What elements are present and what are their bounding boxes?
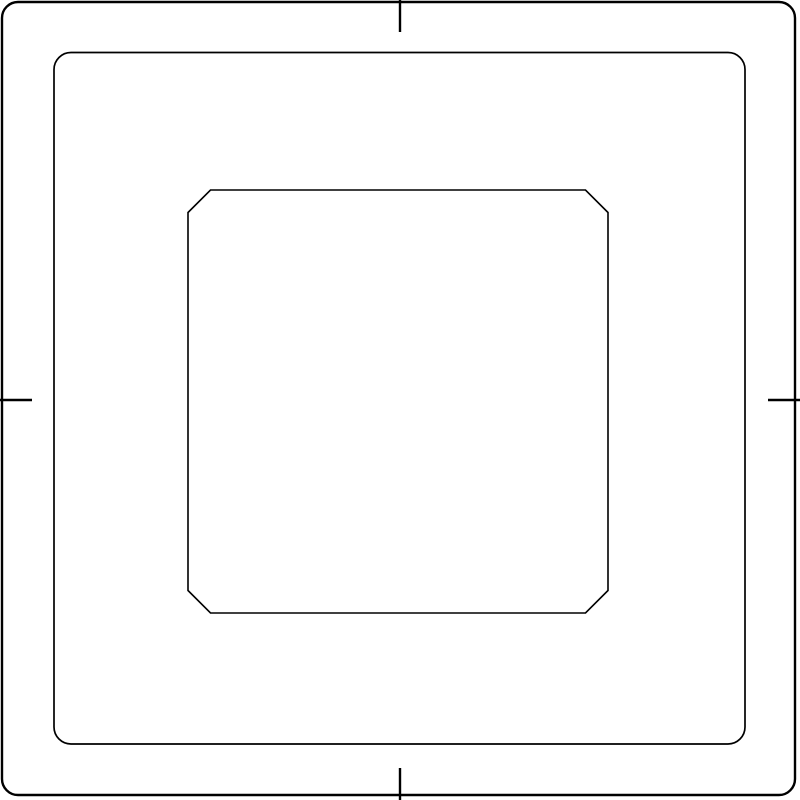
outer-frame-outline: [2, 2, 795, 795]
inner-window-outline: [188, 190, 608, 613]
middle-frame-outline: [54, 53, 745, 745]
plate-diagram: [0, 0, 800, 800]
drawing-canvas: [0, 0, 800, 800]
